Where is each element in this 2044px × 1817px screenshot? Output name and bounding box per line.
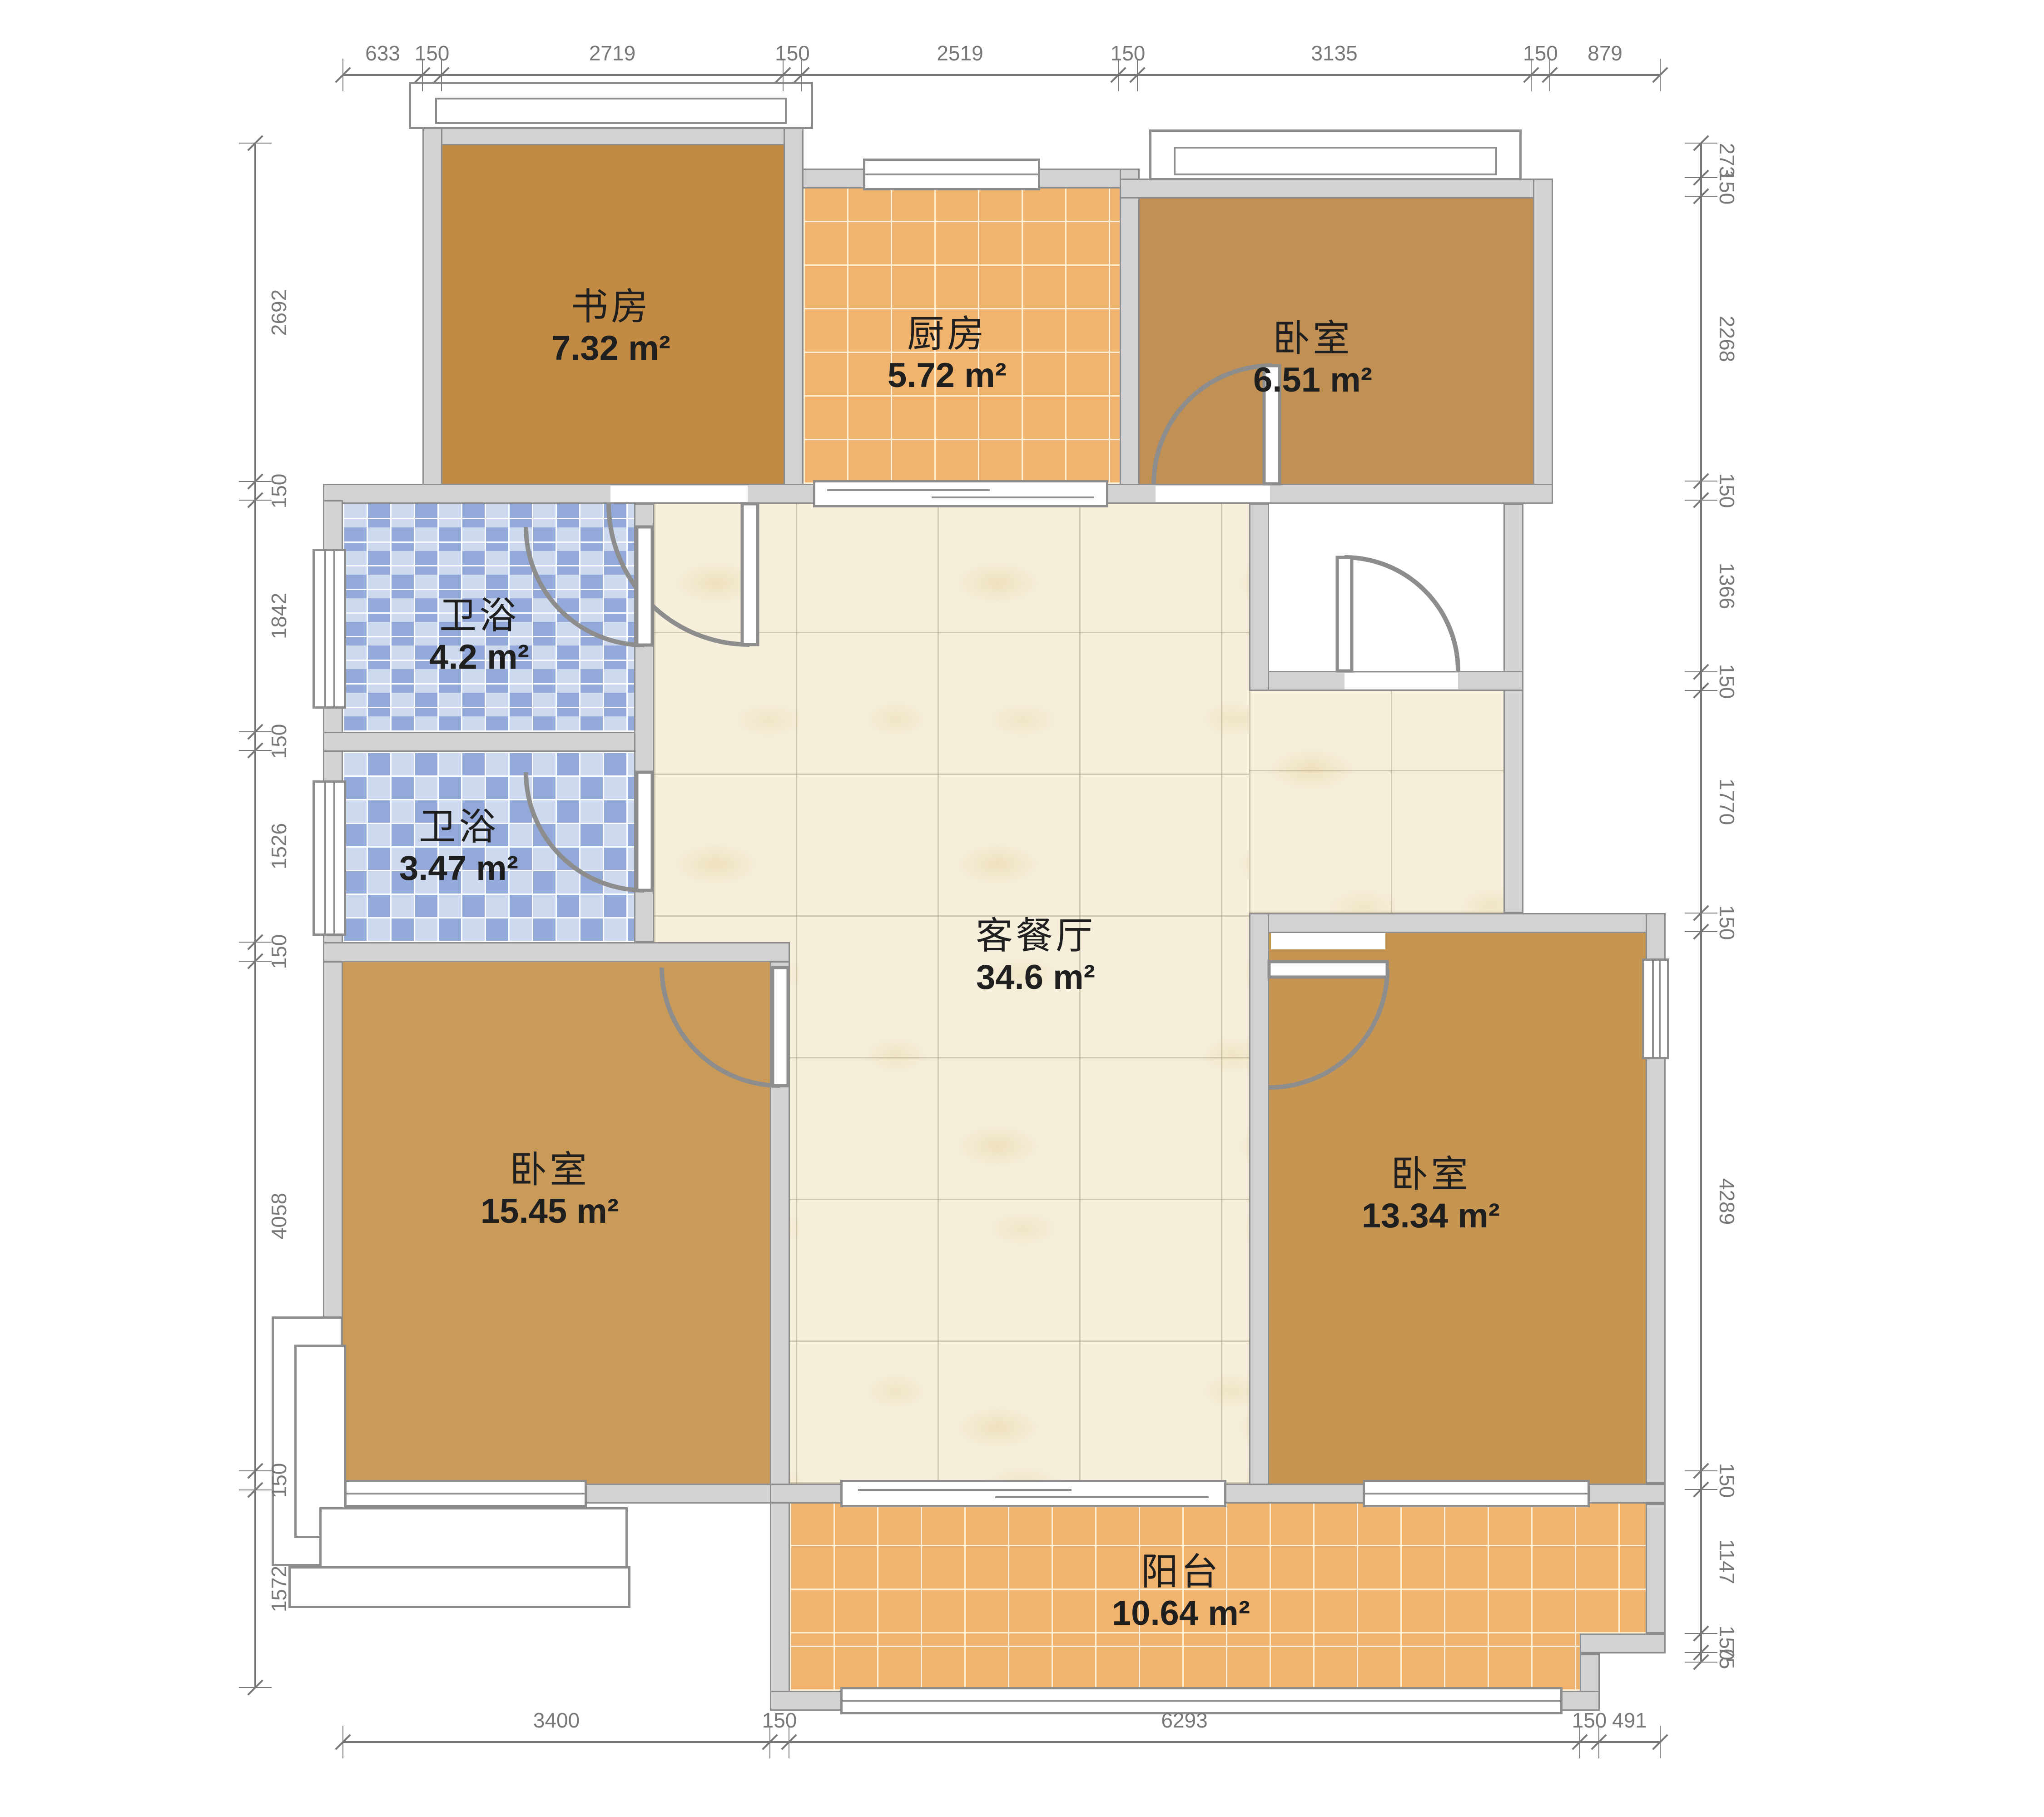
room-area: 10.64 m² <box>1112 1594 1250 1633</box>
floor-plan: 书房 7.32 m² 厨房 5.72 m² 卧室 6.51 m² 卫浴 4.2 … <box>0 0 2044 1817</box>
window-bedroom-tr-top <box>1149 129 1522 180</box>
opening-study-door <box>610 486 748 502</box>
opening-bedroom-right-door <box>1271 933 1385 949</box>
dimension-label: 150 <box>775 41 810 65</box>
opening-bath-lower-door <box>636 774 652 889</box>
window-study-top-sash <box>435 98 787 124</box>
room-area: 4.2 m² <box>429 637 529 677</box>
label-bedroom-right: 卧室 13.34 m² <box>1362 1153 1500 1236</box>
room-name: 书房 <box>551 286 670 328</box>
wall-bath-divider <box>323 732 654 752</box>
opening-bedroom-left-door <box>772 969 788 1084</box>
dimension-label: 879 <box>1588 41 1622 65</box>
dimension-label: 150 <box>1715 473 1739 508</box>
window-bedroom-left-bottom <box>344 1480 587 1507</box>
dimension-label: 150 <box>1111 41 1146 65</box>
dimension-label: 633 <box>365 41 400 65</box>
room-name: 卫浴 <box>399 806 518 849</box>
wall-kitchen-bedroom <box>1120 169 1140 504</box>
wall-bedroom-right-left <box>1249 913 1269 1504</box>
dimension-label: 150 <box>1715 664 1739 699</box>
dimension-label: 150 <box>267 934 291 969</box>
floor-living-extension <box>1249 691 1503 913</box>
dimension-label: 150 <box>267 473 291 508</box>
window-kitchen-top <box>863 159 1040 190</box>
dimension-label: 4058 <box>267 1193 291 1239</box>
dimension-label: 2519 <box>937 41 983 65</box>
dimension-label: 150 <box>415 41 450 65</box>
dimension-label: 3400 <box>533 1708 580 1733</box>
dimension-label: 150 <box>1715 905 1739 940</box>
wall-bedroom-right-top <box>1249 913 1666 933</box>
room-area: 3.47 m² <box>399 849 518 888</box>
dimension-label: 1147 <box>1715 1539 1739 1584</box>
dimension-label: 75 <box>1715 1646 1739 1669</box>
label-bath-lower: 卫浴 3.47 m² <box>399 806 518 889</box>
label-bedroom-top-right: 卧室 6.51 m² <box>1253 318 1372 400</box>
dimension-label: 150 <box>1523 41 1558 65</box>
page: { "rooms": [ {"key": "study", "name": "书… <box>0 0 2044 1817</box>
dimension-label: 1572 <box>267 1565 291 1612</box>
window-bedroom-right-side <box>1642 958 1669 1059</box>
dimension-label: 150 <box>1715 1463 1739 1498</box>
dimension-label: 150 <box>267 1463 291 1498</box>
label-kitchen: 厨房 5.72 m² <box>888 313 1007 396</box>
dimension-label: 1366 <box>1715 563 1739 609</box>
dimension-line-left <box>254 143 256 1688</box>
room-name: 阳台 <box>1112 1551 1250 1594</box>
room-name: 卧室 <box>1362 1153 1500 1196</box>
wall-bedroom-tr-right <box>1533 179 1553 504</box>
dimension-label: 150 <box>762 1708 797 1733</box>
sliding-door-balcony <box>840 1480 1226 1507</box>
dimension-label: 150 <box>267 724 291 759</box>
door-leaf-entry <box>1337 557 1352 671</box>
opening-bath-upper-door <box>636 529 652 643</box>
label-bath-upper: 卫浴 4.2 m² <box>429 595 529 677</box>
room-area: 7.32 m² <box>551 328 670 368</box>
wall-alcove-left <box>1249 504 1269 691</box>
dimension-label: 6293 <box>1161 1708 1207 1733</box>
dimension-label: 491 <box>1612 1708 1647 1733</box>
dimension-label: 150 <box>1572 1708 1607 1733</box>
room-area: 5.72 m² <box>888 356 1007 395</box>
label-living-dining: 客餐厅 34.6 m² <box>976 915 1096 998</box>
dimension-label: 1770 <box>1715 779 1739 825</box>
dimension-label: 1842 <box>267 593 291 639</box>
dimension-label: 1526 <box>267 823 291 869</box>
wall-bedroom-tr-top <box>1120 179 1553 199</box>
dimension-label: 2719 <box>589 41 635 65</box>
window-bath-upper <box>313 549 346 709</box>
dimension-label: 2692 <box>267 289 291 335</box>
label-bedroom-left: 卧室 15.45 m² <box>481 1149 619 1231</box>
room-name: 卧室 <box>1253 318 1372 360</box>
room-area: 13.34 m² <box>1362 1196 1500 1236</box>
window-bath-lower <box>313 780 346 936</box>
wall-balcony-right-upper <box>1646 1504 1666 1633</box>
wall-study-kitchen <box>784 125 804 504</box>
wall-study-left <box>422 125 442 504</box>
label-study: 书房 7.32 m² <box>551 286 670 368</box>
dimension-label: 3135 <box>1311 41 1357 65</box>
opening-bedroom-tr-door <box>1156 486 1270 502</box>
opening-entry-door <box>1344 673 1458 689</box>
sliding-door-kitchen <box>813 480 1108 507</box>
dimension-line-top <box>343 74 1660 76</box>
dimension-line-right <box>1700 143 1702 1662</box>
window-box-lower-left-b <box>288 1566 630 1608</box>
floor-balcony-lower <box>790 1633 1580 1691</box>
wall-balcony-jog <box>1580 1633 1666 1653</box>
wall-living-right <box>1503 504 1523 913</box>
room-name: 卫浴 <box>429 595 529 637</box>
wall-bedroom-left-top <box>323 942 790 962</box>
room-name: 客餐厅 <box>976 915 1096 958</box>
dimension-label: 4289 <box>1715 1178 1739 1224</box>
room-area: 6.51 m² <box>1253 360 1372 400</box>
window-bedroom-tr-sash <box>1174 147 1498 175</box>
room-name: 卧室 <box>481 1149 619 1191</box>
dimension-line-bottom <box>343 1741 1660 1743</box>
window-study-top <box>409 82 813 129</box>
room-name: 厨房 <box>888 313 1007 356</box>
label-balcony: 阳台 10.64 m² <box>1112 1551 1250 1633</box>
dimension-label: 150 <box>1715 169 1739 204</box>
dimension-label: 2268 <box>1715 315 1739 362</box>
door-arc-entry <box>1344 557 1458 671</box>
room-area: 34.6 m² <box>976 958 1096 997</box>
window-bedroom-right-bottom <box>1363 1480 1590 1507</box>
room-area: 15.45 m² <box>481 1191 619 1231</box>
